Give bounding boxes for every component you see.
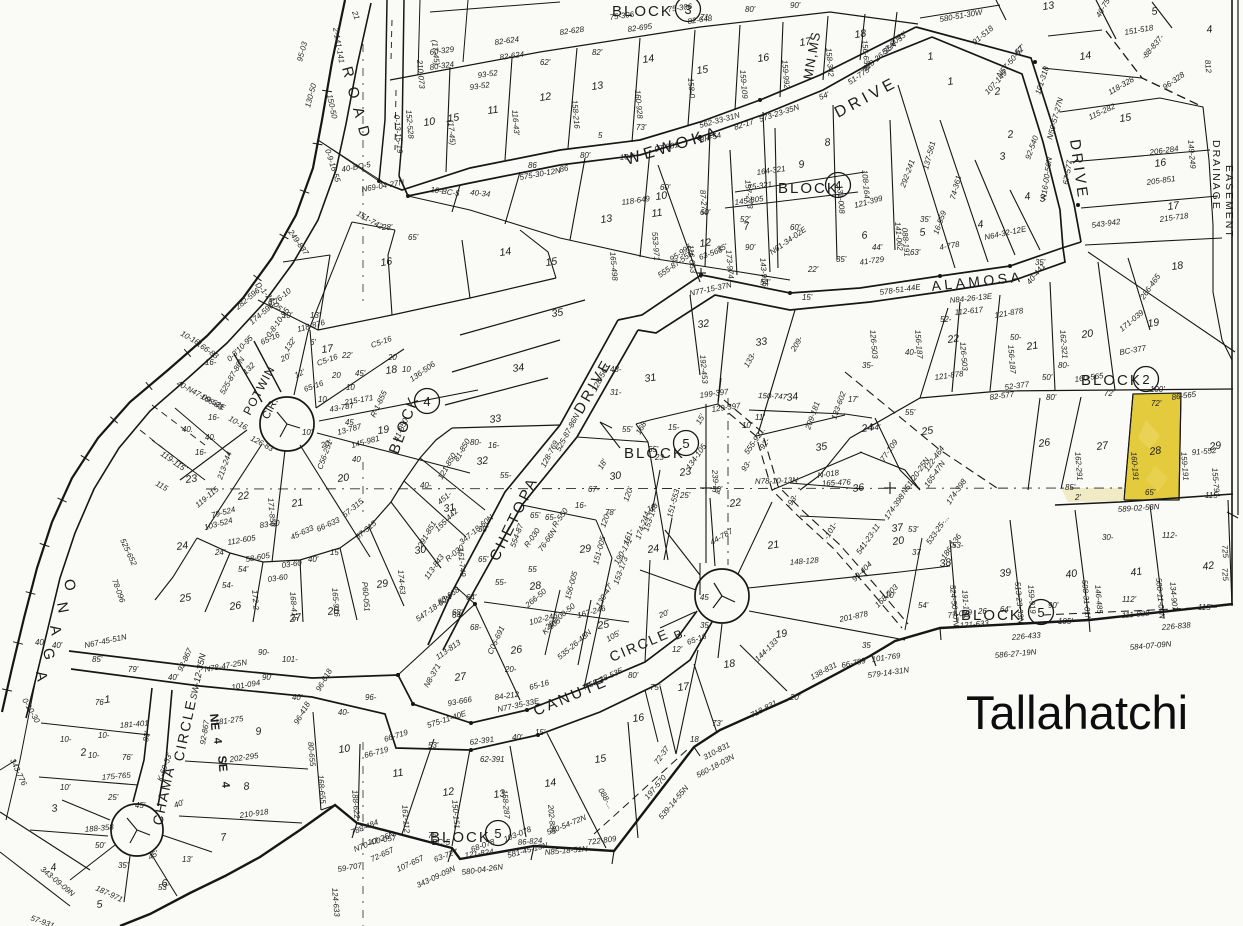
- svg-text:115': 115': [1198, 603, 1213, 612]
- svg-text:18: 18: [690, 735, 699, 744]
- svg-text:40-34: 40-34: [470, 188, 491, 199]
- svg-text:23: 23: [184, 472, 198, 486]
- svg-text:31-: 31-: [610, 388, 622, 397]
- svg-text:64': 64': [466, 593, 477, 602]
- svg-text:79': 79': [128, 665, 139, 674]
- svg-text:40: 40: [352, 455, 361, 464]
- svg-text:40: 40: [1065, 567, 1078, 581]
- svg-text:54': 54': [238, 565, 249, 574]
- svg-text:5: 5: [494, 826, 501, 841]
- svg-text:65': 65': [408, 233, 419, 242]
- svg-text:35-: 35-: [862, 361, 874, 370]
- svg-text:40.: 40.: [182, 425, 193, 434]
- svg-text:40': 40': [292, 693, 303, 702]
- svg-text:76': 76': [122, 753, 133, 762]
- svg-text:Tallahatchi: Tallahatchi: [966, 686, 1188, 739]
- svg-text:50-: 50-: [1010, 333, 1022, 342]
- svg-text:48-: 48-: [610, 365, 622, 374]
- svg-text:22: 22: [728, 496, 742, 510]
- svg-text:73': 73': [636, 123, 647, 132]
- svg-text:20: 20: [387, 353, 397, 362]
- svg-text:64': 64': [1000, 605, 1011, 614]
- svg-text:112': 112': [1122, 595, 1137, 604]
- svg-text:100': 100': [1150, 385, 1165, 394]
- svg-text:36: 36: [852, 481, 865, 495]
- svg-text:80': 80': [628, 671, 639, 680]
- svg-text:15: 15: [330, 548, 339, 557]
- svg-text:18: 18: [1171, 259, 1184, 273]
- svg-text:55': 55': [622, 425, 633, 434]
- svg-text:22: 22: [236, 489, 250, 503]
- svg-text:31: 31: [644, 371, 657, 385]
- svg-text:39: 39: [999, 566, 1012, 580]
- svg-text:30: 30: [609, 469, 622, 483]
- svg-text:55: 55: [528, 565, 537, 574]
- svg-text:33: 33: [755, 335, 768, 349]
- svg-text:EASEMENT: EASEMENT: [1223, 165, 1235, 239]
- svg-text:16-: 16-: [488, 441, 500, 450]
- svg-text:15': 15': [802, 293, 813, 302]
- svg-text:29: 29: [375, 577, 389, 591]
- svg-text:40': 40': [308, 555, 319, 564]
- svg-text:16: 16: [757, 51, 770, 65]
- svg-text:10: 10: [318, 395, 327, 404]
- svg-text:30': 30': [712, 485, 723, 494]
- svg-text:86: 86: [528, 161, 537, 170]
- svg-text:65-: 65-: [545, 513, 557, 522]
- svg-text:35': 35': [118, 861, 129, 870]
- svg-text:22': 22': [807, 265, 819, 274]
- svg-text:20-: 20-: [504, 665, 517, 674]
- svg-text:10: 10: [402, 365, 411, 374]
- svg-text:10': 10': [60, 783, 71, 792]
- svg-text:725: 725: [1220, 544, 1230, 559]
- svg-text:35: 35: [700, 621, 709, 630]
- svg-text:53-: 53-: [952, 541, 964, 550]
- svg-text:40.: 40.: [205, 433, 216, 442]
- svg-text:28': 28': [381, 223, 393, 232]
- svg-text:25: 25: [920, 424, 934, 438]
- svg-text:23-: 23-: [654, 453, 667, 462]
- svg-text:62-391: 62-391: [480, 755, 505, 764]
- svg-text:11: 11: [392, 767, 404, 780]
- svg-text:85': 85': [1065, 483, 1076, 492]
- svg-text:104': 104': [619, 152, 635, 162]
- svg-text:2': 2': [1074, 493, 1081, 502]
- svg-text:72': 72': [1104, 389, 1115, 398]
- svg-text:12': 12': [672, 645, 683, 654]
- svg-text:24': 24': [214, 548, 226, 557]
- svg-text:65': 65': [1145, 488, 1156, 497]
- svg-text:82': 82': [592, 48, 603, 57]
- svg-text:5: 5: [598, 131, 603, 140]
- svg-text:30-: 30-: [1102, 533, 1114, 542]
- svg-text:10': 10': [302, 428, 313, 437]
- svg-text:5: 5: [1037, 605, 1044, 620]
- svg-text:10': 10': [885, 591, 896, 600]
- svg-text:80': 80': [580, 151, 591, 160]
- svg-text:65': 65': [478, 555, 489, 564]
- svg-text:60': 60': [660, 183, 671, 192]
- svg-text:32: 32: [697, 317, 710, 331]
- svg-text:15-: 15-: [668, 423, 680, 432]
- svg-text:18: 18: [723, 657, 736, 671]
- svg-text:158-0: 158-0: [686, 77, 697, 98]
- svg-text:15: 15: [545, 255, 558, 269]
- svg-text:22: 22: [946, 332, 960, 346]
- svg-text:4: 4: [423, 394, 430, 409]
- svg-text:55-: 55-: [495, 578, 507, 587]
- svg-text:15: 15: [1119, 111, 1132, 125]
- svg-text:112-: 112-: [1162, 531, 1178, 540]
- svg-text:16-: 16-: [575, 501, 587, 510]
- svg-text:10: 10: [423, 115, 436, 129]
- svg-text:52-: 52-: [940, 315, 952, 324]
- svg-text:90': 90': [262, 673, 273, 682]
- svg-text:24: 24: [175, 539, 189, 553]
- svg-text:60': 60': [790, 223, 801, 232]
- svg-text:35': 35': [836, 255, 847, 264]
- svg-text:40': 40': [52, 641, 63, 650]
- svg-text:55-: 55-: [500, 471, 512, 480]
- svg-text:6': 6': [310, 338, 316, 347]
- svg-text:76-: 76-: [95, 698, 107, 707]
- svg-text:37: 37: [912, 548, 921, 557]
- svg-text:16-: 16-: [208, 413, 220, 422]
- svg-text:12: 12: [539, 90, 552, 104]
- svg-text:40': 40': [35, 638, 46, 647]
- svg-text:62': 62': [540, 58, 551, 67]
- svg-text:725: 725: [1220, 567, 1230, 582]
- svg-text:40': 40': [512, 733, 523, 742]
- svg-text:20: 20: [1080, 327, 1094, 341]
- svg-text:165-476: 165-476: [822, 477, 852, 488]
- svg-text:90': 90': [745, 243, 756, 252]
- svg-text:28: 28: [1148, 444, 1162, 458]
- svg-text:85': 85': [92, 655, 103, 664]
- svg-text:90': 90': [1048, 601, 1059, 610]
- svg-text:34: 34: [512, 361, 525, 375]
- svg-text:45': 45': [355, 369, 366, 378]
- svg-text:N78-10-13N: N78-10-13N: [755, 475, 799, 486]
- svg-text:89': 89': [141, 730, 152, 742]
- svg-text:15': 15': [535, 728, 546, 737]
- svg-text:13': 13': [182, 855, 193, 864]
- svg-text:O: O: [60, 578, 79, 594]
- svg-text:73': 73': [712, 719, 723, 728]
- svg-text:26: 26: [1037, 436, 1051, 450]
- svg-text:44': 44': [872, 243, 883, 252]
- svg-text:34: 34: [786, 390, 799, 404]
- svg-text:35: 35: [551, 306, 564, 320]
- svg-text:68-: 68-: [470, 623, 482, 632]
- svg-text:35: 35: [862, 641, 871, 650]
- svg-text:14: 14: [499, 245, 512, 259]
- svg-text:22': 22': [341, 351, 353, 360]
- svg-text:35': 35': [920, 215, 931, 224]
- svg-text:54': 54': [918, 601, 929, 610]
- svg-text:26: 26: [977, 607, 987, 616]
- svg-text:11: 11: [651, 207, 663, 220]
- svg-text:20: 20: [891, 534, 905, 548]
- svg-text:80': 80': [745, 5, 756, 14]
- svg-text:15: 15: [594, 752, 607, 766]
- svg-text:10-: 10-: [60, 735, 72, 744]
- svg-text:13: 13: [591, 79, 604, 93]
- svg-text:10: 10: [346, 383, 355, 392]
- svg-text:20': 20': [789, 693, 801, 702]
- svg-text:812: 812: [1203, 59, 1213, 74]
- svg-text:14: 14: [642, 52, 655, 66]
- svg-text:10': 10': [282, 311, 293, 320]
- svg-text:32: 32: [476, 454, 489, 468]
- svg-text:29: 29: [578, 542, 592, 556]
- svg-text:42: 42: [1202, 559, 1215, 573]
- svg-text:26: 26: [228, 599, 242, 613]
- svg-text:13': 13': [310, 311, 321, 320]
- svg-text:35: 35: [815, 440, 828, 454]
- svg-text:65': 65': [530, 511, 541, 520]
- svg-text:80-: 80-: [470, 438, 482, 447]
- svg-text:150-747: 150-747: [758, 391, 788, 402]
- svg-text:60': 60': [700, 208, 711, 217]
- svg-text:50': 50': [95, 841, 106, 850]
- svg-text:80-: 80-: [1058, 361, 1070, 370]
- svg-text:13: 13: [1042, 0, 1055, 13]
- svg-text:17': 17': [848, 395, 859, 404]
- svg-text:40-: 40-: [905, 348, 917, 357]
- svg-text:10: 10: [338, 742, 351, 756]
- svg-text:2: 2: [1142, 372, 1149, 387]
- svg-text:24: 24: [646, 542, 660, 556]
- svg-text:80': 80': [1046, 393, 1057, 402]
- svg-text:18: 18: [385, 363, 398, 377]
- svg-text:13: 13: [600, 212, 613, 226]
- svg-text:20: 20: [336, 471, 350, 485]
- svg-text:12: 12: [442, 785, 455, 799]
- svg-text:115-: 115-: [1205, 491, 1221, 500]
- svg-text:75: 75: [428, 831, 437, 840]
- svg-text:75': 75': [650, 683, 661, 692]
- svg-text:21: 21: [290, 496, 304, 510]
- svg-text:41: 41: [1130, 565, 1143, 579]
- svg-text:105': 105': [1058, 617, 1073, 626]
- svg-text:53': 53': [908, 525, 919, 534]
- svg-text:33: 33: [489, 412, 502, 426]
- svg-text:96-: 96-: [365, 693, 377, 702]
- svg-text:64-: 64-: [452, 611, 464, 620]
- svg-text:54': 54': [870, 423, 881, 432]
- svg-text:25': 25': [107, 793, 119, 802]
- svg-text:40-: 40-: [420, 481, 432, 490]
- svg-text:20: 20: [331, 371, 341, 380]
- svg-text:11': 11': [755, 413, 765, 422]
- svg-text:10-: 10-: [88, 751, 100, 760]
- svg-text:90': 90': [790, 1, 801, 10]
- svg-text:19: 19: [775, 627, 788, 641]
- svg-text:19: 19: [1147, 316, 1160, 330]
- svg-text:40': 40': [168, 673, 179, 682]
- svg-text:26: 26: [509, 643, 523, 657]
- svg-text:6': 6': [268, 298, 274, 307]
- svg-text:DRAINAGE: DRAINAGE: [1210, 140, 1222, 211]
- svg-text:40-: 40-: [338, 708, 350, 717]
- svg-text:90-: 90-: [258, 648, 270, 657]
- svg-text:53': 53': [428, 741, 439, 750]
- svg-text:5: 5: [682, 436, 689, 451]
- svg-text:14: 14: [544, 776, 557, 790]
- svg-text:16: 16: [380, 255, 393, 269]
- svg-text:11: 11: [487, 104, 499, 117]
- svg-text:16: 16: [632, 711, 645, 725]
- svg-text:15: 15: [696, 63, 709, 77]
- svg-text:50': 50': [1042, 373, 1053, 382]
- svg-text:21: 21: [1025, 339, 1039, 353]
- svg-text:16-: 16-: [195, 448, 207, 457]
- svg-text:54-: 54-: [222, 581, 234, 590]
- svg-text:19: 19: [377, 423, 390, 437]
- svg-text:67-: 67-: [588, 485, 600, 494]
- svg-text:16-: 16-: [205, 358, 217, 367]
- svg-text:72': 72': [1151, 399, 1162, 408]
- svg-text:10': 10': [742, 421, 753, 430]
- svg-text:172-2: 172-2: [250, 589, 261, 610]
- svg-text:52': 52': [740, 215, 751, 224]
- svg-text:16: 16: [1154, 156, 1167, 170]
- svg-text:25: 25: [178, 591, 192, 605]
- svg-text:14: 14: [1079, 49, 1092, 63]
- svg-text:35': 35': [1035, 258, 1046, 267]
- svg-text:21: 21: [766, 538, 780, 552]
- svg-text:45': 45': [135, 801, 146, 810]
- svg-text:55': 55': [905, 408, 916, 417]
- svg-text:53': 53': [158, 883, 169, 892]
- svg-text:25: 25: [596, 618, 610, 632]
- svg-text:10-: 10-: [98, 731, 110, 740]
- svg-text:45: 45: [700, 593, 709, 602]
- svg-text:101-: 101-: [282, 655, 298, 664]
- svg-text:SE: SE: [215, 755, 230, 772]
